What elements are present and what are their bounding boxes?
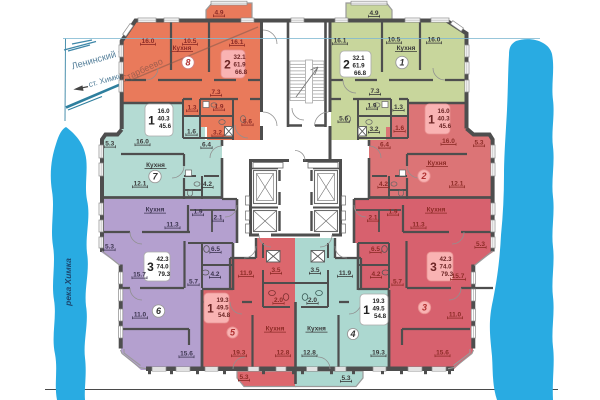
svg-text:61.9: 61.9 [353, 63, 366, 70]
svg-text:4: 4 [349, 329, 355, 339]
svg-text:79.3: 79.3 [158, 271, 171, 278]
svg-text:Кухня: Кухня [266, 326, 285, 333]
svg-text:4.2: 4.2 [203, 181, 212, 188]
svg-text:5.3: 5.3 [474, 140, 483, 147]
svg-text:11.9: 11.9 [339, 270, 352, 277]
svg-text:12.1: 12.1 [451, 181, 464, 188]
svg-text:16.0: 16.0 [136, 139, 149, 146]
svg-text:1.6: 1.6 [187, 129, 196, 136]
svg-text:49.5: 49.5 [373, 306, 386, 313]
svg-text:11.0: 11.0 [134, 312, 147, 319]
svg-text:7.3: 7.3 [370, 88, 379, 95]
svg-text:2.1: 2.1 [368, 215, 377, 222]
svg-text:16.0: 16.0 [438, 108, 451, 115]
svg-text:2.0: 2.0 [274, 297, 283, 304]
svg-text:5.3: 5.3 [105, 244, 114, 251]
svg-text:16.0: 16.0 [442, 138, 455, 145]
svg-text:Кухня: Кухня [397, 45, 416, 52]
svg-text:3: 3 [430, 260, 437, 274]
svg-text:6.4: 6.4 [202, 142, 211, 149]
svg-text:19.3: 19.3 [233, 350, 246, 357]
svg-text:16.0: 16.0 [428, 37, 441, 44]
svg-text:19.3: 19.3 [373, 298, 386, 305]
svg-text:4.2: 4.2 [210, 271, 219, 278]
svg-text:8: 8 [185, 58, 190, 68]
svg-text:5.3: 5.3 [239, 374, 248, 381]
svg-text:2.0: 2.0 [308, 297, 317, 304]
svg-text:1.9: 1.9 [193, 209, 202, 216]
svg-text:Кухня: Кухня [173, 45, 192, 52]
svg-text:5.6: 5.6 [243, 119, 252, 126]
svg-text:1.6: 1.6 [395, 125, 404, 132]
svg-text:1: 1 [399, 58, 404, 68]
svg-text:32.1: 32.1 [234, 54, 247, 61]
svg-text:6.4: 6.4 [380, 142, 389, 149]
svg-text:Кухня: Кухня [427, 207, 446, 214]
svg-text:12.8: 12.8 [303, 350, 316, 357]
svg-text:5.7: 5.7 [189, 279, 198, 286]
svg-text:42.3: 42.3 [440, 256, 453, 263]
svg-text:10.5: 10.5 [184, 38, 197, 45]
svg-text:61.9: 61.9 [234, 62, 247, 69]
svg-text:2.1: 2.1 [213, 215, 222, 222]
svg-text:1: 1 [363, 303, 370, 317]
svg-text:4.9: 4.9 [369, 10, 378, 17]
svg-text:Кухня: Кухня [428, 160, 447, 167]
svg-text:1: 1 [148, 114, 155, 128]
svg-text:1.3: 1.3 [187, 105, 196, 112]
svg-text:66.8: 66.8 [354, 70, 367, 77]
svg-text:66.8: 66.8 [235, 69, 248, 76]
svg-text:45.6: 45.6 [439, 123, 452, 130]
svg-text:12.1: 12.1 [134, 181, 147, 188]
svg-text:74.0: 74.0 [440, 264, 453, 271]
svg-text:40.3: 40.3 [158, 116, 171, 123]
svg-text:4.2: 4.2 [371, 271, 380, 278]
svg-text:49.5: 49.5 [217, 305, 230, 312]
svg-text:19.3: 19.3 [372, 350, 385, 357]
svg-text:2: 2 [224, 58, 231, 72]
svg-text:15.7: 15.7 [133, 272, 146, 279]
svg-text:3: 3 [147, 260, 154, 274]
svg-text:4.2: 4.2 [379, 181, 388, 188]
svg-text:15.6: 15.6 [436, 350, 449, 357]
svg-text:5.7: 5.7 [393, 279, 402, 286]
svg-text:16.0: 16.0 [142, 38, 155, 45]
svg-text:12.8: 12.8 [277, 350, 290, 357]
svg-text:Кухня: Кухня [307, 326, 326, 333]
svg-text:Кухня: Кухня [146, 162, 165, 169]
svg-text:6.5: 6.5 [211, 246, 220, 253]
svg-text:15.7: 15.7 [452, 273, 465, 280]
svg-text:16.1: 16.1 [334, 38, 347, 45]
svg-text:19.3: 19.3 [217, 297, 230, 304]
svg-text:1.9: 1.9 [214, 104, 223, 111]
svg-text:3.2: 3.2 [213, 130, 222, 137]
svg-text:1.9: 1.9 [367, 103, 376, 110]
svg-text:1: 1 [207, 302, 214, 316]
svg-text:3: 3 [422, 303, 427, 313]
svg-text:река Химка: река Химка [63, 258, 73, 307]
svg-text:1.9: 1.9 [388, 209, 397, 216]
svg-text:10.5: 10.5 [388, 37, 401, 44]
svg-text:Кухня: Кухня [146, 207, 165, 214]
svg-text:54.8: 54.8 [374, 313, 387, 320]
svg-text:3.2: 3.2 [369, 126, 378, 133]
svg-text:3.5: 3.5 [271, 267, 280, 274]
svg-text:4.9: 4.9 [214, 10, 223, 17]
svg-text:32.1: 32.1 [353, 55, 366, 62]
svg-text:5.3: 5.3 [341, 375, 350, 382]
svg-text:5.3: 5.3 [105, 141, 114, 148]
svg-text:16.1: 16.1 [231, 39, 244, 46]
svg-text:11.3: 11.3 [412, 222, 425, 229]
svg-text:5.6: 5.6 [339, 116, 348, 123]
svg-text:11.3: 11.3 [166, 222, 179, 229]
svg-text:2: 2 [420, 171, 426, 181]
svg-text:74.0: 74.0 [157, 264, 170, 271]
svg-text:40.3: 40.3 [438, 116, 451, 123]
svg-text:42.3: 42.3 [157, 256, 170, 263]
svg-text:1.3: 1.3 [394, 104, 403, 111]
svg-text:1: 1 [428, 113, 435, 127]
svg-text:5.3: 5.3 [476, 241, 485, 248]
svg-text:2: 2 [343, 58, 350, 72]
svg-text:11.9: 11.9 [240, 270, 253, 277]
svg-text:6.5: 6.5 [371, 246, 380, 253]
svg-text:54.8: 54.8 [218, 312, 231, 319]
svg-text:3.5: 3.5 [310, 267, 319, 274]
svg-text:11.0: 11.0 [449, 312, 462, 319]
svg-text:16.0: 16.0 [158, 108, 171, 115]
svg-text:7.3: 7.3 [211, 89, 220, 96]
svg-text:45.6: 45.6 [159, 123, 172, 130]
svg-text:15.6: 15.6 [180, 351, 193, 358]
